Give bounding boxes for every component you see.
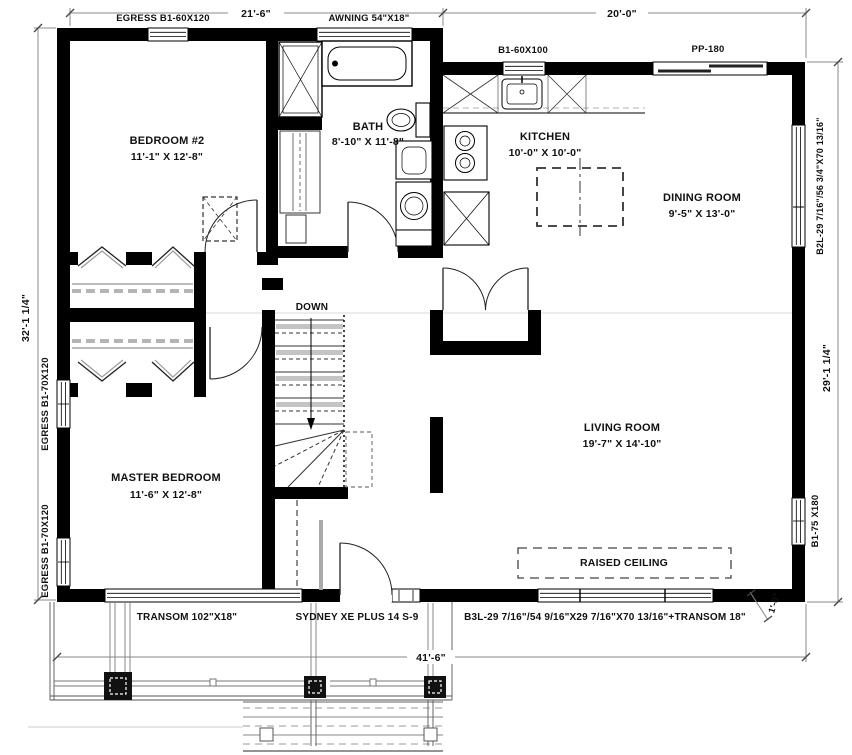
bedroom2-door — [205, 200, 392, 602]
wall-left — [57, 28, 70, 602]
label-raised-ceiling: RAISED CEILING — [580, 557, 668, 569]
dishwasher — [548, 75, 586, 113]
interior-walls — [70, 41, 541, 602]
label-egress-left-lower: EGRESS B1-70X120 — [40, 504, 51, 598]
room-kitchen-size: 10'-0" X 10'-0" — [509, 147, 582, 159]
label-down: DOWN — [296, 302, 328, 313]
washer — [396, 182, 432, 246]
dining-window — [792, 125, 805, 247]
porch-post — [304, 676, 326, 698]
porch — [28, 602, 452, 751]
label-egress-top: EGRESS B1-60X120 — [116, 13, 210, 24]
room-living: LIVING ROOM — [584, 422, 660, 434]
master-door — [210, 327, 262, 379]
floor-plan-page: 21'-6" 20'-0" 32'-1 1/4" 29'-1 1/4" 41'-… — [0, 0, 852, 755]
room-bedroom2-size: 11'-1" X 12'-8" — [131, 151, 203, 163]
entry-closet-doors — [443, 268, 528, 310]
label-kitchen-window: B1-60X100 — [498, 45, 548, 56]
kitchen-island — [537, 158, 623, 236]
bathtub — [322, 41, 412, 86]
tub-faucet — [332, 61, 338, 67]
kitchen-sink — [502, 76, 542, 109]
shower — [279, 42, 322, 117]
dim-right: 29'-1 1/4" — [821, 344, 833, 392]
egress-left-lower-window — [57, 538, 70, 586]
front-door-sidelite — [392, 589, 420, 602]
front-entry-door — [340, 543, 392, 595]
wall-step — [430, 28, 443, 75]
room-bath: BATH — [353, 121, 384, 133]
room-master: MASTER BEDROOM — [111, 472, 221, 484]
egress-left-upper-window — [57, 380, 70, 428]
stairs — [275, 315, 372, 590]
bifold-door — [152, 247, 194, 266]
front-triple-window — [538, 589, 713, 602]
room-living-size: 19'-7" X 14'-10" — [583, 438, 662, 450]
egress-top-window — [148, 28, 188, 41]
label-patio-door: PP-180 — [692, 44, 725, 55]
room-master-size: 11'-6" X 12'-8" — [130, 489, 202, 501]
label-living-window: B1-75 X180 — [810, 495, 821, 548]
label-egress-left-upper: EGRESS B1-70X120 — [40, 357, 51, 451]
label-front-door: SYDNEY XE PLUS 14 S-9 — [296, 612, 419, 623]
porch-post — [424, 676, 446, 698]
linen-closet — [280, 131, 320, 243]
label-transom: TRANSOM 102"X18" — [137, 612, 238, 623]
label-front-window: B3L-29 7/16"/54 9/16"X29 7/16"X70 13/16"… — [464, 612, 746, 623]
bifold-door — [152, 362, 194, 381]
room-bath-size: 8'-10" X 11'-8" — [332, 136, 404, 148]
transom-window — [105, 589, 302, 602]
awning-window — [317, 28, 412, 41]
fridge — [444, 192, 489, 245]
dim-top-left: 21'-6" — [241, 8, 271, 20]
front-door-opening — [340, 589, 392, 602]
bifold-door — [78, 362, 126, 381]
kitchen-fixtures — [443, 75, 645, 245]
label-dining-window: B2L-29 7/16"/56 3/4"X70 13/16" — [815, 117, 825, 254]
kitchen-window — [503, 62, 545, 75]
stove — [444, 126, 487, 180]
dim-top-right: 20'-0" — [607, 8, 637, 20]
room-dining: DINING ROOM — [663, 192, 741, 204]
room-dining-size: 9'-5" X 13'-0" — [669, 208, 736, 220]
toilet — [387, 103, 430, 137]
doors — [205, 200, 528, 602]
label-awning: AWNING 54"X18" — [329, 13, 410, 24]
living-window — [792, 498, 805, 545]
patio-door — [653, 62, 767, 75]
bath-door — [348, 202, 398, 252]
bifold-door — [78, 247, 126, 266]
room-bedroom2: BEDROOM #2 — [130, 135, 205, 147]
room-kitchen: KITCHEN — [520, 131, 570, 143]
dim-bottom: 41'-6" — [416, 652, 446, 664]
floor-plan-canvas: 21'-6" 20'-0" 32'-1 1/4" 29'-1 1/4" 41'-… — [0, 0, 852, 755]
dim-left: 32'-1 1/4" — [20, 294, 32, 342]
front-steps — [28, 700, 443, 751]
porch-post — [104, 672, 132, 700]
